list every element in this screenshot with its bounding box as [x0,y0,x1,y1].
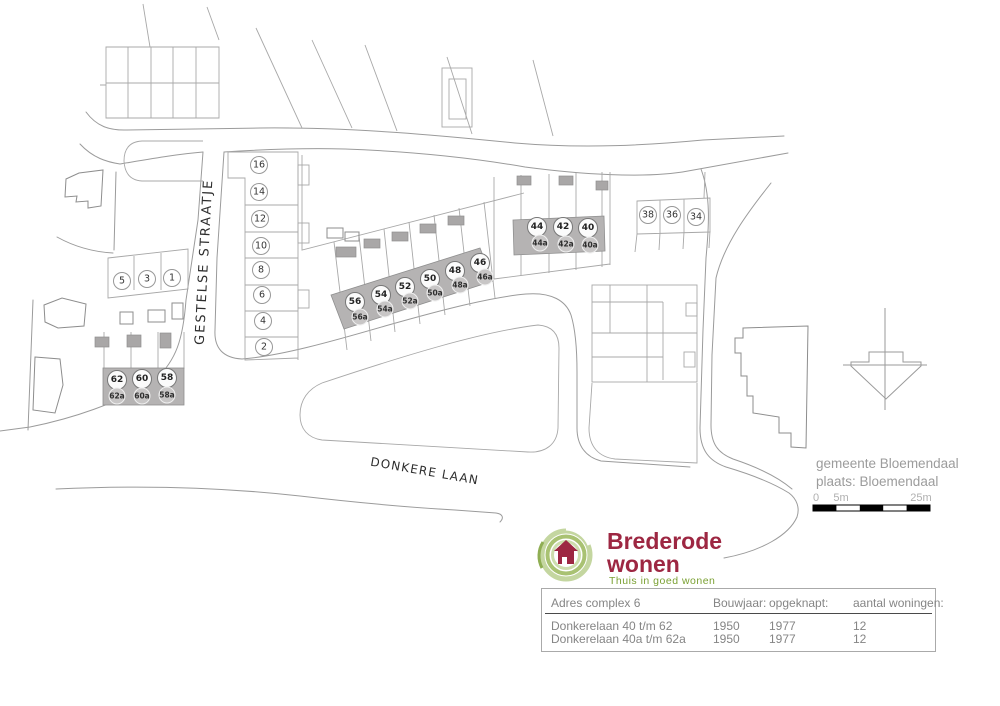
svg-text:60: 60 [136,374,149,384]
parcel-number: 4 [255,313,272,330]
svg-text:14: 14 [253,187,265,198]
parcel-number: 6 [254,287,271,304]
parcel-number: 5 [114,273,131,290]
parcel-number: 34 [688,209,705,226]
svg-text:34: 34 [690,212,702,223]
svg-text:44: 44 [531,222,544,232]
svg-text:40: 40 [582,223,595,233]
svg-text:44a: 44a [532,239,548,248]
svg-text:52a: 52a [402,297,418,306]
svg-text:58a: 58a [159,391,175,400]
svg-text:50a: 50a [427,289,443,298]
parcel-number: 8 [253,262,270,279]
table-cell: 12 [853,619,866,633]
svg-text:60a: 60a [134,392,150,401]
house-number-sub: 44a [532,235,548,251]
house-number-sub: 40a [582,237,598,253]
house-number: 40 [579,219,598,238]
house-number: 42 [554,218,573,237]
house-number-sub: 48a [452,277,468,293]
svg-text:38: 38 [642,210,654,221]
house-number-sub: 42a [558,236,574,252]
scale-tick-0: 0 [813,492,819,504]
scale-tick-5m: 5m [833,492,848,504]
svg-text:58: 58 [161,373,174,383]
table-cell: Donkerelaan 40a t/m 62a [551,632,686,646]
house-numbers-right: 44 42 40 44a 42a 40a [528,218,599,254]
table-header-adres: Adres complex 6 [551,596,640,610]
svg-text:48: 48 [449,266,462,276]
parcel-numbers-north: 5 3 1 [114,270,181,290]
svg-text:56a: 56a [352,313,368,322]
parcel-number: 14 [251,184,268,201]
svg-text:8: 8 [258,265,264,276]
parcel-number: 36 [664,207,681,224]
svg-text:36: 36 [666,210,678,221]
table-cell: 1977 [769,632,796,646]
svg-text:46: 46 [474,258,487,268]
street-label-donkere: DONKERE LAAN [369,455,480,488]
house-number: 58 [158,369,177,388]
north-arrow-icon [843,308,927,410]
house-number-sub: 62a [109,388,125,404]
road-network [0,112,798,558]
svg-text:42a: 42a [558,240,574,249]
svg-text:12: 12 [254,214,266,225]
house-number-sub: 56a [352,309,368,325]
logo-text-line2: wonen [606,551,680,577]
svg-text:1: 1 [169,273,175,284]
table-cell: 12 [853,632,866,646]
scale-bar [813,505,930,511]
house-number-sub: 54a [377,301,393,317]
svg-text:54: 54 [375,290,388,300]
house-number-sub: 60a [134,388,150,404]
brederode-wonen-logo: Brederode wonen Thuis in goed wonen [539,528,722,587]
svg-text:52: 52 [399,282,412,292]
scale-tick-25m: 25m [910,492,931,504]
table-header-bouwjaar: Bouwjaar: [713,596,766,610]
house-number: 56 [346,293,365,312]
house-number-sub: 46a [477,269,493,285]
svg-text:16: 16 [253,160,265,171]
site-plan-page: 16 14 12 10 8 6 4 2 5 3 1 38 36 34 62 60… [0,0,1000,706]
svg-text:50: 50 [424,274,437,284]
complex-info-table: Adres complex 6 Bouwjaar: opgeknapt: aan… [541,588,936,652]
svg-text:2: 2 [261,342,267,353]
svg-text:48a: 48a [452,281,468,290]
table-cell: 1977 [769,619,796,633]
parcel-numbers-gestelse: 16 14 12 10 8 6 4 2 [251,157,273,356]
svg-text:10: 10 [255,241,267,252]
svg-text:4: 4 [260,316,266,327]
svg-text:40a: 40a [582,241,598,250]
house-number: 60 [133,370,152,389]
svg-text:5: 5 [119,276,125,287]
logo-tagline: Thuis in goed wonen [609,575,715,587]
parcel-number: 38 [640,207,657,224]
table-header-opgeknapt: opgeknapt: [769,596,828,610]
table-cell: 1950 [713,619,740,633]
municipality-line1: gemeente Bloemendaal [816,456,959,471]
parcel-numbers-east: 38 36 34 [640,207,705,226]
svg-text:62a: 62a [109,392,125,401]
table-cell: Donkerelaan 40 t/m 62 [551,619,672,633]
table-cell: 1950 [713,632,740,646]
legend-block: gemeente Bloemendaal plaats: Bloemendaal… [813,456,959,511]
parcel-number: 10 [253,238,270,255]
house-number: 44 [528,218,547,237]
svg-text:62: 62 [111,375,124,385]
street-label-gestelse: GESTELSE STRAATJE [193,178,217,345]
house-number-sub: 58a [159,387,175,403]
svg-text:54a: 54a [377,305,393,314]
parcel-number: 2 [256,339,273,356]
table-header-aantal: aantal woningen: [853,596,944,610]
house-number-sub: 50a [427,285,443,301]
table-header-divider [545,613,932,614]
svg-text:46a: 46a [477,273,493,282]
house-number: 62 [108,371,127,390]
parcel-number: 1 [164,270,181,287]
svg-text:6: 6 [259,290,265,301]
parcel-number: 3 [139,271,156,288]
parcel-number: 16 [251,157,268,174]
municipality-line2: plaats: Bloemendaal [816,474,938,489]
svg-text:42: 42 [557,222,570,232]
svg-text:56: 56 [349,297,362,307]
svg-text:3: 3 [144,274,150,285]
house-number-sub: 52a [402,293,418,309]
parcel-number: 12 [252,211,269,228]
house-numbers-left: 62 60 58 62a 60a 58a [108,369,177,405]
